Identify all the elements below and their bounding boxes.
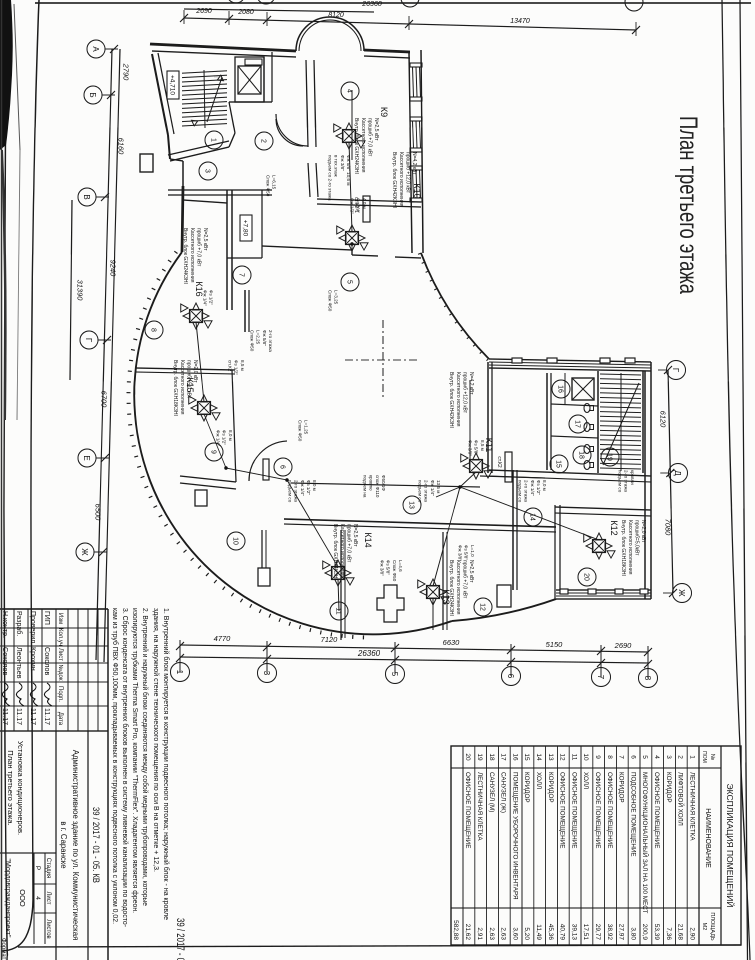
svg-text:В: В (82, 194, 91, 199)
svg-text:2,90: 2,90 (688, 927, 695, 940)
svg-text:14: 14 (535, 753, 542, 761)
svg-text:ОФИСНОЕ ПОМЕЩЕНИЕ: ОФИСНОЕ ПОМЕЩЕНИЕ (653, 772, 660, 848)
svg-text:подъем со: подъем со (517, 480, 522, 503)
svg-text:4,0 м: 4,0 м (362, 198, 367, 209)
svg-text:подъем со: подъем со (417, 480, 422, 503)
svg-text:К9: К9 (379, 107, 389, 117)
svg-text:2-го этажа: 2-го этажа (268, 330, 273, 352)
svg-text:Установка кондиционеров.: Установка кондиционеров. (16, 741, 25, 835)
svg-text:19: 19 (476, 753, 483, 761)
svg-text:39,13: 39,13 (570, 924, 577, 941)
svg-text:прошиб +12,0 кВт: прошиб +12,0 кВт (461, 372, 467, 414)
svg-text:29,77: 29,77 (594, 924, 601, 941)
svg-text:прошиб +7,0 кВт: прошиб +7,0 кВт (196, 228, 202, 267)
svg-text:Б: Б (88, 92, 97, 97)
svg-text:1: 1 (210, 138, 217, 142)
svg-text:3: 3 (262, 671, 271, 676)
svg-text:17: 17 (574, 420, 581, 428)
svg-text:прошиб +7,0 кВт: прошиб +7,0 кВт (345, 524, 351, 563)
svg-text:прошиб=5,0кВт: прошиб=5,0кВт (634, 520, 640, 556)
svg-text:Проверил: Проверил (29, 611, 36, 643)
svg-text:2: 2 (260, 139, 267, 143)
svg-text:Фз 5/8": Фз 5/8" (386, 560, 391, 575)
svg-text:Фж 1/4": Фж 1/4" (202, 290, 207, 306)
svg-text:N=2,5 кВт: N=2,5 кВт (202, 228, 208, 251)
svg-text:Кассетного исполнения: Кассетного исполнения (179, 360, 185, 415)
svg-text:Формат А3: Формат А3 (0, 938, 6, 960)
svg-text:38,92: 38,92 (606, 924, 613, 941)
svg-text:11.17: 11.17 (29, 708, 36, 725)
svg-text:Внутр. блок GXH24K3HI: Внутр. блок GXH24K3HI (448, 560, 454, 616)
svg-text:Д: Д (673, 470, 682, 476)
svg-text:16: 16 (557, 385, 564, 393)
svg-text:Внутр. блок GXH24K3HI: Внутр. блок GXH24K3HI (353, 118, 359, 174)
svg-text:ООО: ООО (18, 889, 27, 907)
svg-text:Крохин: Крохин (29, 647, 38, 671)
svg-text:в г. Саранске: в г. Саранске (59, 821, 68, 868)
svg-text:+4,710: +4,710 (169, 75, 176, 95)
svg-text:5150: 5150 (546, 640, 564, 649)
svg-text:4: 4 (34, 896, 41, 900)
svg-text:Кассетного исполнения: Кассетного исполнения (455, 560, 461, 615)
svg-text:Леонтьев: Леонтьев (15, 647, 24, 679)
svg-text:2-го этажа: 2-го этажа (524, 480, 529, 502)
svg-text:План третьего этажа: План третьего этажа (674, 116, 702, 294)
svg-text:Лист: Лист (45, 891, 51, 904)
svg-text:ПОМ: ПОМ (701, 751, 707, 763)
svg-text:Кассетного исполнения: Кассетного исполнения (189, 228, 195, 283)
svg-text:6: 6 (506, 674, 515, 679)
svg-text:ОФИСНОЕ ПОМЕЩЕНИЕ: ОФИСНОЕ ПОМЕЩЕНИЕ (559, 772, 566, 848)
svg-text:N=2,0 кВт: N=2,0 кВт (640, 520, 646, 543)
svg-text:21,62: 21,62 (464, 924, 471, 941)
svg-text:4: 4 (653, 755, 660, 759)
svg-text:7: 7 (596, 675, 605, 680)
svg-text:Фж 1/4": Фж 1/4" (300, 480, 305, 496)
svg-text:Фз 1/2": Фз 1/2" (306, 480, 311, 495)
svg-text:2-го этажа: 2-го этажа (624, 470, 629, 492)
svg-text:2-го этажа: 2-го этажа (424, 480, 429, 502)
svg-text:8,5 м: 8,5 м (240, 360, 245, 371)
svg-text:Стадия: Стадия (45, 858, 51, 878)
svg-text:2,63: 2,63 (488, 927, 495, 940)
svg-text:Спож Ф50: Спож Ф50 (392, 560, 397, 582)
svg-text:Ж: Ж (677, 589, 686, 597)
svg-text:2: 2 (677, 755, 684, 759)
svg-text:582,88: 582,88 (452, 920, 459, 940)
svg-text:3,80: 3,80 (629, 927, 636, 940)
svg-text:ОФИСНОЕ ПОМЕЩЕНИЕ: ОФИСНОЕ ПОМЕЩЕНИЕ (606, 772, 613, 848)
svg-text:А: А (91, 46, 100, 52)
svg-text:39 / 2017 - 0: 39 / 2017 - 0 (174, 918, 186, 960)
svg-text:Дата: Дата (57, 712, 63, 726)
svg-text:САНУЗЕЛ (М): САНУЗЕЛ (М) (488, 772, 495, 812)
svg-text:7: 7 (618, 755, 625, 759)
svg-text:26360: 26360 (361, 1, 382, 8)
svg-text:3. Сброс конденсата от внутрен: 3. Сброс конденсата от внутренних блоков… (121, 608, 130, 927)
svg-text:Кол.уч: Кол.уч (57, 628, 63, 646)
svg-text:18: 18 (488, 753, 495, 761)
svg-text:Лист: Лист (57, 648, 63, 661)
svg-text:Фж 1/4": Фж 1/4" (430, 480, 435, 496)
svg-text:9240: 9240 (108, 260, 117, 278)
svg-text:№док: №док (57, 665, 64, 681)
svg-text:13,5 м: 13,5 м (436, 480, 441, 493)
svg-text:6120: 6120 (658, 411, 667, 429)
svg-text:7,36: 7,36 (665, 927, 672, 940)
svg-text:11: 11 (570, 754, 577, 761)
svg-text:12: 12 (559, 753, 566, 761)
svg-text:Спож Ф50: Спож Ф50 (297, 420, 302, 442)
svg-text:5: 5 (390, 672, 399, 677)
svg-text:6: 6 (279, 465, 286, 469)
svg-text:31390: 31390 (75, 280, 84, 302)
svg-text:Внутр. блок GXH42K3HI: Внутр. блок GXH42K3HI (391, 152, 397, 208)
svg-text:N=4,2 кВт: N=4,2 кВт (411, 152, 417, 175)
svg-text:8,0 м: 8,0 м (228, 430, 233, 441)
svg-text:кам из труб ПВХ Ф50,100мм, про: кам из труб ПВХ Ф50,100мм, прокладываемы… (111, 608, 120, 924)
svg-text:ГИП: ГИП (43, 611, 50, 625)
svg-text:N=4,2 кВт: N=4,2 кВт (468, 372, 474, 395)
svg-text:1. Внутренний блок монтируется: 1. Внутренний блок монтируется в констру… (162, 608, 171, 920)
svg-text:Р: Р (34, 866, 41, 870)
svg-text:L=3,25: L=3,25 (334, 290, 339, 305)
svg-text:ст.К2: ст.К2 (496, 456, 502, 468)
svg-text:Ж: Ж (80, 548, 89, 556)
svg-text:2. Внутренний и наружный блоки: 2. Внутренний и наружный блоки соединяют… (141, 608, 150, 906)
svg-text:17: 17 (500, 753, 507, 761)
svg-text:ЭКСПЛИКАЦИЯ ПОМЕЩЕНИЙ: ЭКСПЛИКАЦИЯ ПОМЕЩЕНИЙ (725, 784, 736, 908)
svg-text:Административное здание по ул.: Административное здание по ул. Коммунист… (71, 750, 80, 941)
svg-text:21,68: 21,68 (677, 924, 684, 941)
svg-text:кровлю: кровлю (369, 475, 374, 491)
svg-text:2790: 2790 (121, 63, 130, 82)
svg-text:11: 11 (335, 607, 342, 614)
svg-text:45,36: 45,36 (547, 924, 554, 941)
svg-text:Разраб.: Разраб. (15, 611, 23, 636)
svg-text:26360: 26360 (357, 649, 381, 658)
svg-text:ПЛОЩАДЬ: ПЛОЩАДЬ (709, 912, 715, 941)
svg-text:L=4,6: L=4,6 (398, 560, 403, 572)
svg-text:в тех.этаж: в тех.этаж (334, 155, 339, 178)
svg-text:изолируются трубками Therma Sm: изолируются трубками Therma Smart Pro, к… (131, 608, 140, 913)
svg-text:САНУЗЕЛ (Ж): САНУЗЕЛ (Ж) (500, 772, 507, 813)
svg-text:Фж 3/8": Фж 3/8" (379, 560, 384, 576)
svg-text:Спож Ф50: Спож Ф50 (249, 330, 254, 352)
svg-text:1: 1 (175, 670, 184, 675)
svg-text:кровли: кровли (630, 470, 635, 485)
svg-text:Кассетного исполнения: Кассетного исполнения (627, 520, 633, 575)
svg-text:М2: М2 (701, 923, 707, 931)
svg-text:прошиб +12,0 кВт: прошиб +12,0 кВт (404, 152, 410, 194)
svg-text:8,0 м: 8,0 м (312, 480, 317, 491)
svg-text:КОРИДОР: КОРИДОР (618, 772, 625, 803)
svg-text:40,79: 40,79 (559, 924, 566, 941)
svg-text:13: 13 (408, 501, 415, 509)
svg-text:Фз 5/8": Фз 5/8" (474, 440, 479, 455)
svg-text:5: 5 (641, 755, 648, 759)
svg-text:6160: 6160 (116, 138, 125, 156)
svg-text:8: 8 (150, 328, 157, 332)
svg-text:8: 8 (643, 676, 652, 681)
svg-text:подъем со: подъем со (287, 480, 292, 503)
svg-text:8,5 м: 8,5 м (480, 440, 485, 451)
svg-text:Листов: Листов (45, 919, 51, 939)
svg-text:12: 12 (479, 603, 486, 611)
svg-text:18: 18 (578, 451, 585, 459)
svg-text:3: 3 (665, 755, 672, 759)
svg-text:Г: Г (84, 338, 93, 343)
svg-text:ОФИСНОЕ ПОМЕЩЕНИЕ: ОФИСНОЕ ПОМЕЩЕНИЕ (594, 772, 601, 848)
svg-text:Ф50/1Ф: Ф50/1Ф (381, 475, 386, 491)
svg-text:8,0 м: 8,0 м (542, 480, 547, 491)
svg-text:Подп.: Подп. (57, 686, 63, 702)
svg-text:Фз 3/4": Фз 3/4" (356, 198, 361, 213)
svg-text:ЛЕСТНИЧНАЯ КЛЕТКА: ЛЕСТНИЧНАЯ КЛЕТКА (688, 772, 695, 841)
svg-text:Внутр. блок GXH42K3HI: Внутр. блок GXH42K3HI (448, 372, 454, 428)
svg-text:15: 15 (523, 753, 530, 761)
svg-text:Внутр. блок GXH24K3HI: Внутр. блок GXH24K3HI (182, 228, 188, 284)
svg-text:Фж 1/4": Фж 1/4" (530, 480, 535, 496)
svg-text:4770: 4770 (214, 634, 232, 643)
svg-text:Е: Е (82, 455, 91, 460)
svg-text:+7,80: +7,80 (242, 220, 249, 237)
svg-text:Фз 1/2": Фз 1/2" (209, 290, 214, 305)
svg-text:6630: 6630 (443, 638, 461, 647)
svg-text:прошиб +5,0 кВт: прошиб +5,0 кВт (186, 360, 192, 399)
svg-text:КОРИДОР: КОРИДОР (523, 772, 530, 803)
svg-text:11.17: 11.17 (43, 708, 50, 725)
svg-text:6: 6 (629, 755, 636, 759)
svg-text:"Мордовгражданпроект": "Мордовгражданпроект" (4, 859, 11, 938)
svg-text:прошиб +7,0 кВт: прошиб +7,0 кВт (366, 118, 372, 157)
svg-text:Фз 1/2": Фз 1/2" (234, 360, 239, 375)
svg-text:КОРИДОР: КОРИДОР (665, 772, 672, 803)
svg-text:11.17: 11.17 (15, 708, 22, 725)
svg-text:НАИМЕНОВАНИЕ: НАИМЕНОВАНИЕ (704, 808, 711, 868)
svg-text:L=2,25: L=2,25 (256, 330, 261, 345)
svg-text:ПОМЕЩЕНИЕ УБОРОЧНОГО ИНВЕНТАРЯ: ПОМЕЩЕНИЕ УБОРОЧНОГО ИНВЕНТАРЯ (511, 772, 518, 900)
svg-text:53,39: 53,39 (653, 924, 660, 941)
svg-text:7080: 7080 (663, 519, 672, 537)
svg-text:N=2,5 кВт: N=2,5 кВт (468, 560, 474, 583)
svg-text:ПОДСОБНОЕ ПОМЕЩЕНИЕ: ПОДСОБНОЕ ПОМЕЩЕНИЕ (629, 772, 636, 857)
svg-text:Фж 5/8": Фж 5/8" (262, 330, 267, 346)
svg-text:16: 16 (511, 753, 518, 761)
svg-text:200,9: 200,9 (641, 924, 648, 941)
svg-text:КОРИДОР: КОРИДОР (547, 772, 554, 803)
svg-text:подъем со: подъем со (617, 470, 622, 493)
svg-text:Кассетного исполнения: Кассетного исполнения (339, 524, 345, 579)
svg-text:9: 9 (594, 755, 601, 759)
svg-text:2690: 2690 (614, 641, 633, 650)
svg-text:L=1,0: L=1,0 (470, 545, 475, 557)
svg-text:N=2,0 кВт: N=2,0 кВт (192, 360, 198, 383)
svg-text:К12: К12 (609, 520, 619, 535)
svg-text:13470: 13470 (510, 18, 530, 25)
svg-text:Изм: Изм (57, 613, 63, 624)
svg-text:5,20: 5,20 (523, 927, 530, 940)
svg-text:17,51: 17,51 (582, 924, 589, 941)
svg-text:2,63: 2,63 (500, 927, 507, 940)
svg-text:11,49: 11,49 (535, 924, 542, 940)
svg-text:3: 3 (204, 169, 211, 173)
svg-text:К11: К11 (484, 438, 494, 453)
svg-text:спож Ф110: спож Ф110 (375, 475, 380, 498)
svg-text:19: 19 (606, 453, 613, 461)
svg-text:Соколов: Соколов (1, 647, 10, 676)
svg-text:7120: 7120 (321, 635, 339, 644)
svg-text:N=2,5 кВт: N=2,5 кВт (373, 118, 379, 141)
svg-text:ЛЕСТНИЧНАЯ КЛЕТКА: ЛЕСТНИЧНАЯ КЛЕТКА (476, 772, 483, 841)
svg-text:7: 7 (238, 273, 245, 277)
svg-text:2690: 2690 (195, 8, 212, 15)
svg-text:27,97: 27,97 (618, 924, 625, 941)
svg-text:ХОЛЛ: ХОЛЛ (582, 772, 589, 789)
svg-text:Фз 1/2": Фз 1/2" (536, 480, 541, 495)
svg-text:3,60: 3,60 (511, 927, 518, 940)
svg-text:Фз 1/2": Фз 1/2" (222, 430, 227, 445)
svg-text:подъем на: подъем на (362, 475, 367, 498)
svg-text:10: 10 (582, 753, 589, 761)
svg-text:Соколов: Соколов (43, 647, 52, 676)
svg-text:ОФИСНОЕ ПОМЕЩЕНИЕ: ОФИСНОЕ ПОМЕЩЕНИЕ (464, 772, 471, 848)
svg-text:20: 20 (464, 753, 471, 761)
svg-text:прошиб +7,0 кВт: прошиб +7,0 кВт (461, 560, 467, 599)
svg-text:здания, на наружной стене техн: здания, на наружной стене технического п… (152, 608, 161, 872)
svg-text:сп.К2: сп.К2 (227, 360, 232, 372)
svg-text:L=6,15: L=6,15 (272, 175, 277, 190)
svg-text:Фз 5/8": Фз 5/8" (464, 545, 469, 560)
svg-text:Внутр. блок GXH24K3HI: Внутр. блок GXH24K3HI (332, 524, 338, 580)
svg-text:Спож Ф50: Спож Ф50 (327, 290, 332, 312)
svg-text:6500: 6500 (93, 504, 102, 522)
svg-text:Фж 3/8": Фж 3/8" (340, 155, 345, 171)
svg-text:подъем со 2-го этажа: подъем со 2-го этажа (327, 155, 332, 201)
svg-text:39 / 2017 - 01 - 05. КВ: 39 / 2017 - 01 - 05. КВ (90, 807, 101, 883)
svg-text:1: 1 (688, 755, 695, 759)
svg-text:L=1,25: L=1,25 (304, 420, 309, 435)
svg-text:13: 13 (547, 753, 554, 761)
svg-text:Внутр. блок GXH18K3HI: Внутр. блок GXH18K3HI (620, 520, 626, 576)
svg-text:Кассетного исполнения: Кассетного исполнения (455, 372, 461, 427)
svg-text:Г: Г (671, 368, 680, 373)
svg-text:9: 9 (210, 450, 217, 454)
svg-text:2080: 2080 (237, 9, 254, 16)
svg-text:Кассетного исполнения: Кассетного исполнения (398, 152, 404, 207)
svg-text:6700: 6700 (99, 391, 108, 409)
svg-text:Фж 1/2": Фж 1/2" (349, 198, 354, 214)
svg-text:Спож Ф50: Спож Ф50 (265, 175, 270, 197)
svg-text:ОФИСНОЕ ПОМЕЩЕНИЕ: ОФИСНОЕ ПОМЕЩЕНИЕ (570, 772, 577, 848)
svg-text:Фж 3/8": Фж 3/8" (457, 545, 462, 561)
svg-text:5: 5 (346, 280, 353, 284)
svg-text:8: 8 (606, 755, 613, 759)
svg-text:ХОЛЛ: ХОЛЛ (535, 772, 542, 789)
svg-text:№: № (709, 754, 716, 760)
svg-text:План третьего этажа.: План третьего этажа. (6, 750, 15, 825)
svg-text:15: 15 (555, 460, 562, 468)
svg-text:N=2,5 кВт: N=2,5 кВт (352, 524, 358, 547)
svg-text:Внутр. блок GXH18K3HI: Внутр. блок GXH18K3HI (172, 360, 178, 416)
svg-text:20: 20 (583, 573, 590, 581)
svg-text:10: 10 (232, 537, 239, 545)
svg-text:К10: К10 (412, 183, 422, 198)
svg-text:К14: К14 (363, 532, 373, 547)
svg-text:2,91: 2,91 (476, 927, 483, 940)
